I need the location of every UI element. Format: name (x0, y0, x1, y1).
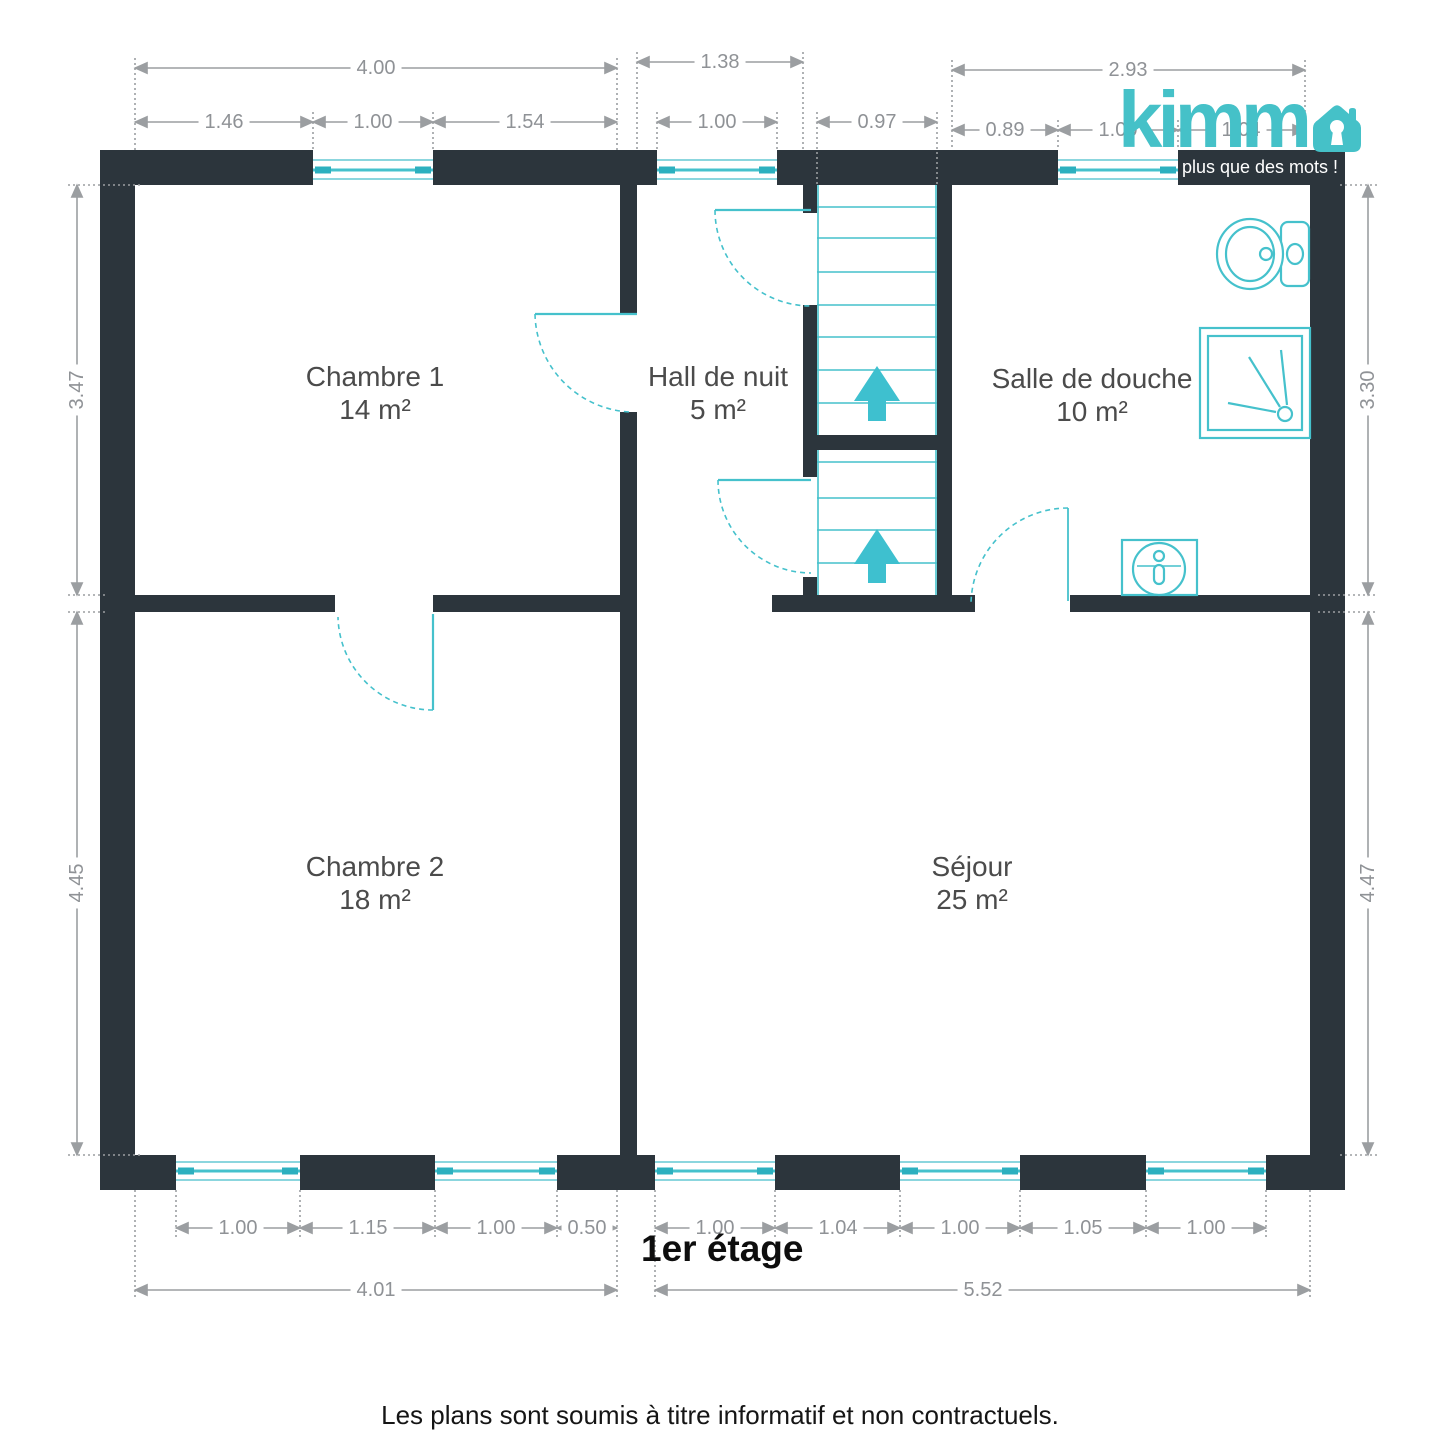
room-label-chambre-2: Chambre 2 18 m² (306, 850, 445, 916)
windows (176, 150, 1266, 1190)
door-stairs-bottom (718, 480, 811, 573)
floor-title: 1er étage (641, 1228, 804, 1270)
door-chambre1 (535, 314, 637, 412)
room-name: Chambre 2 (306, 850, 445, 883)
staircase (817, 185, 937, 595)
dim-label: 1.04 (813, 1217, 864, 1239)
window (313, 150, 433, 185)
window (1146, 1155, 1266, 1190)
dim-label: 4.45 (66, 858, 88, 909)
logo-tagline: plus que des mots ! (1178, 151, 1342, 184)
dim-label: 1.00 (348, 111, 399, 133)
room-label-sejour: Séjour 25 m² (932, 850, 1013, 916)
door-chambre2 (338, 614, 433, 710)
room-label-hall-de-nuit: Hall de nuit 5 m² (648, 360, 788, 426)
dim-label: 4.01 (351, 1279, 402, 1301)
walls (100, 150, 1345, 1190)
room-name: Salle de douche (992, 362, 1193, 395)
house-o-icon (1309, 101, 1365, 155)
dim-label: 1.00 (935, 1217, 986, 1239)
window (176, 1155, 300, 1190)
door-bathroom (971, 508, 1068, 605)
room-area: 5 m² (648, 393, 788, 426)
dim-label: 3.47 (66, 365, 88, 416)
dim-label: 1.38 (695, 51, 746, 73)
room-name: Chambre 1 (306, 360, 445, 393)
logo-wordmark: kimm (1118, 80, 1307, 160)
room-area: 25 m² (932, 883, 1013, 916)
dim-label: 1.46 (199, 111, 250, 133)
dim-label: 4.00 (351, 57, 402, 79)
room-label-salle-de-douche: Salle de douche 10 m² (992, 362, 1193, 428)
room-name: Séjour (932, 850, 1013, 883)
kimmo-logo: kimm (1118, 80, 1365, 160)
window (435, 1155, 557, 1190)
room-area: 10 m² (992, 395, 1193, 428)
dim-label: 1.15 (343, 1217, 394, 1239)
shower-icon (1200, 328, 1310, 438)
doors (338, 210, 1068, 710)
window (655, 1155, 775, 1190)
extension-lines (68, 52, 1378, 1300)
door-stairs-top (715, 210, 811, 306)
dim-label: 1.00 (213, 1217, 264, 1239)
dim-label: 0.97 (852, 111, 903, 133)
dim-label: 1.54 (500, 111, 551, 133)
room-area: 18 m² (306, 883, 445, 916)
window (657, 150, 777, 185)
disclaimer-text: Les plans sont soumis à titre informatif… (0, 1400, 1440, 1431)
dim-label: 1.05 (1058, 1217, 1109, 1239)
dim-label: 0.50 (562, 1217, 613, 1239)
room-name: Hall de nuit (648, 360, 788, 393)
sink-icon (1122, 540, 1197, 595)
dim-label: 1.00 (471, 1217, 522, 1239)
dim-label: 0.89 (980, 119, 1031, 141)
room-label-chambre-1: Chambre 1 14 m² (306, 360, 445, 426)
dim-label: 5.52 (958, 1279, 1009, 1301)
window (900, 1155, 1020, 1190)
dim-label: 3.30 (1357, 365, 1379, 416)
dim-label: 1.00 (1181, 1217, 1232, 1239)
dim-label: 1.00 (692, 111, 743, 133)
room-area: 14 m² (306, 393, 445, 426)
toilet-icon (1217, 219, 1309, 289)
dim-label: 4.47 (1357, 858, 1379, 909)
